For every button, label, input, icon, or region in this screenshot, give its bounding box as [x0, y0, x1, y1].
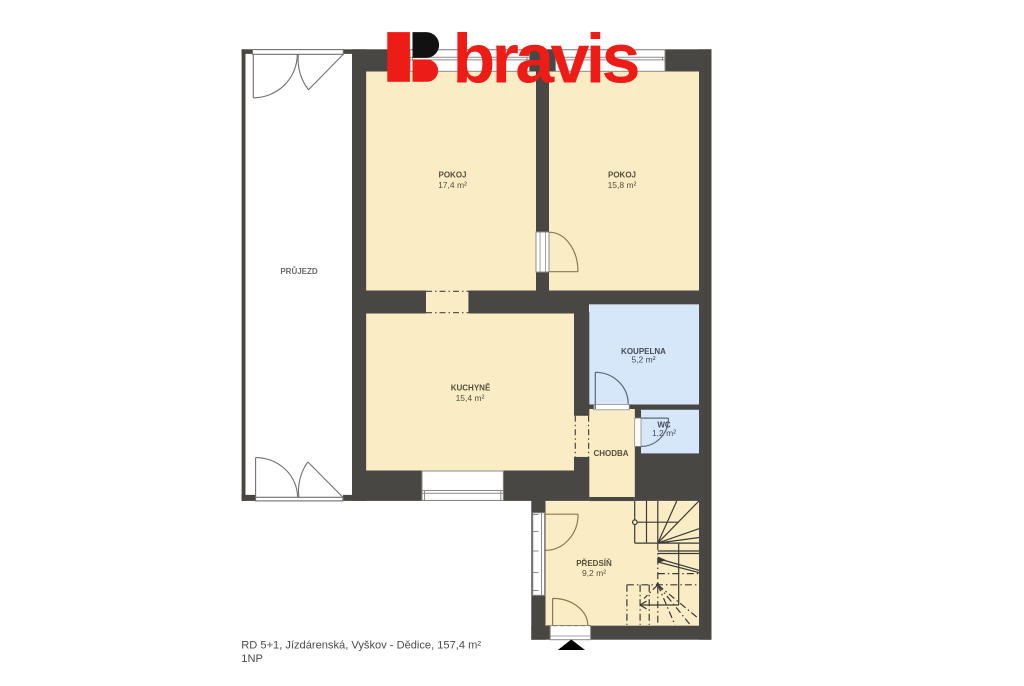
- svg-text:PRŮJEZD: PRŮJEZD: [280, 266, 318, 276]
- svg-text:RD 5+1, Jízdárenská, Vyškov -: RD 5+1, Jízdárenská, Vyškov - Dědice, 15…: [241, 640, 481, 652]
- svg-text:17,4 m²: 17,4 m²: [438, 180, 467, 190]
- svg-text:PŘEDSÍŇ: PŘEDSÍŇ: [576, 559, 612, 568]
- svg-text:5,2 m²: 5,2 m²: [631, 355, 655, 365]
- svg-text:KUCHYNĚ: KUCHYNĚ: [451, 384, 491, 393]
- svg-text:bravis: bravis: [453, 20, 641, 98]
- svg-text:POKOJ: POKOJ: [438, 171, 466, 180]
- svg-text:POKOJ: POKOJ: [608, 171, 636, 180]
- svg-text:9,2 m²: 9,2 m²: [582, 568, 606, 578]
- svg-text:15,4 m²: 15,4 m²: [456, 393, 485, 403]
- svg-text:15,8 m²: 15,8 m²: [608, 180, 637, 190]
- svg-text:1,2 m²: 1,2 m²: [652, 428, 676, 438]
- svg-text:1NP: 1NP: [241, 653, 263, 665]
- svg-text:CHODBA: CHODBA: [593, 449, 628, 458]
